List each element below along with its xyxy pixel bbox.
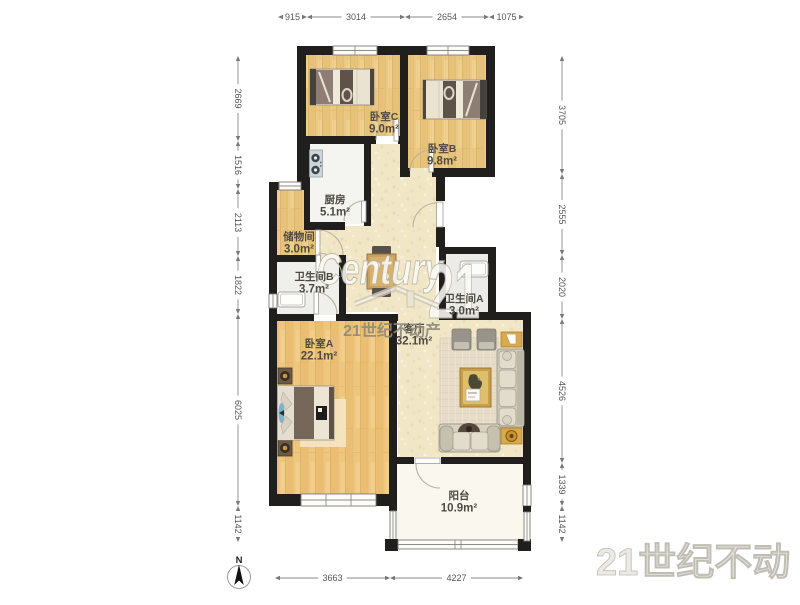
svg-text:4526: 4526 [557,381,567,401]
svg-text:1142: 1142 [233,514,243,533]
svg-text:1075: 1075 [496,12,516,22]
svg-text:3.0m²: 3.0m² [284,244,314,256]
svg-text:3.7m²: 3.7m² [299,284,329,296]
svg-text:1142: 1142 [557,514,567,533]
svg-text:1339: 1339 [557,474,567,494]
svg-text:1516: 1516 [233,155,243,175]
svg-text:卫生间B: 卫生间B [294,270,333,283]
svg-text:2555: 2555 [557,204,567,224]
svg-text:3.0m²: 3.0m² [449,306,479,318]
svg-text:2654: 2654 [437,12,457,22]
svg-text:Century: Century [317,245,445,294]
svg-text:N: N [236,555,243,566]
svg-text:1822: 1822 [233,275,243,295]
svg-text:21: 21 [428,248,480,335]
svg-text:2669: 2669 [233,88,243,108]
svg-text:21世纪不动产: 21世纪不动产 [343,321,441,340]
svg-text:5.1m²: 5.1m² [320,207,350,219]
svg-text:卫生间A: 卫生间A [444,292,483,305]
svg-text:卧室A: 卧室A [305,337,334,350]
svg-text:10.9m²: 10.9m² [441,503,478,515]
svg-text:卧室B: 卧室B [428,142,457,155]
svg-text:2020: 2020 [557,277,567,297]
svg-text:22.1m²: 22.1m² [301,351,338,363]
svg-text:6025: 6025 [233,400,243,420]
svg-text:915: 915 [285,12,300,22]
svg-text:21世纪不动: 21世纪不动 [596,542,790,584]
svg-text:9.0m²: 9.0m² [369,124,399,136]
svg-text:2113: 2113 [233,213,243,232]
svg-text:3014: 3014 [346,12,366,22]
svg-text:阳台: 阳台 [449,489,470,502]
svg-text:4227: 4227 [446,573,466,583]
svg-text:卧室C: 卧室C [370,110,399,123]
svg-text:厨房: 厨房 [325,193,346,206]
svg-text:3663: 3663 [322,573,342,583]
svg-text:9.8m²: 9.8m² [427,156,457,168]
svg-text:3705: 3705 [557,105,567,125]
svg-text:储物间: 储物间 [283,230,315,243]
